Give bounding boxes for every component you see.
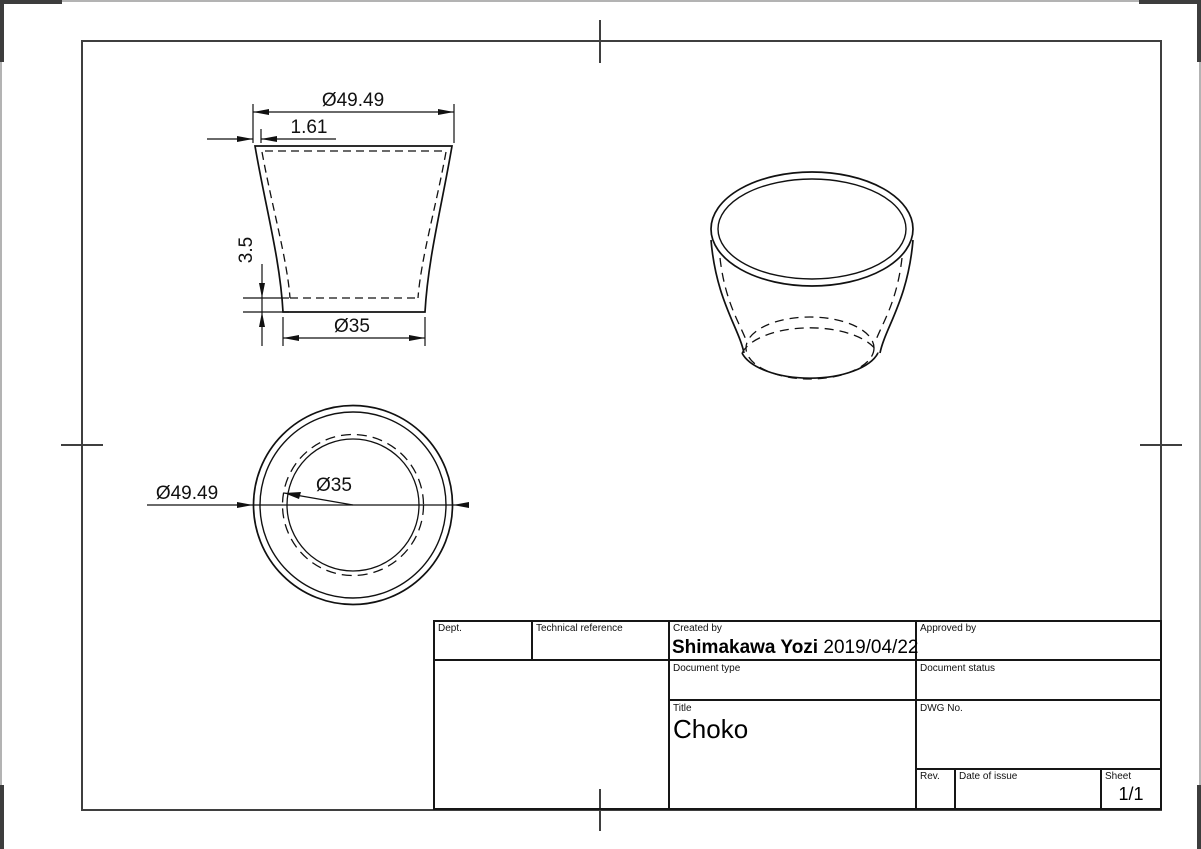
iso-rim-inner-ellipse <box>718 179 906 279</box>
title-label: Title <box>673 703 692 714</box>
front-view-hidden-lines <box>262 151 446 298</box>
dept-label: Dept. <box>438 623 462 634</box>
dim-front-bottom-diameter-text: Ø35 <box>334 316 370 337</box>
front-view: Ø49.49 1.61 3.5 Ø35 <box>207 90 454 346</box>
technical-reference-label: Technical reference <box>536 623 623 634</box>
title-value: Choko <box>673 714 748 745</box>
title-block-vline-rev <box>954 768 956 810</box>
created-date: 2019/04/22 <box>823 637 918 658</box>
drawing-sheet: { "title_block": { "dept_label": "Dept."… <box>0 0 1201 849</box>
dim-front-top-diameter-text: Ø49.49 <box>322 90 384 111</box>
iso-bottom-front-arc <box>742 353 878 378</box>
iso-rim-outer-ellipse <box>711 172 913 286</box>
sheet-frame <box>61 20 1182 831</box>
iso-right-silhouette <box>880 240 913 353</box>
title-block-vline-dept <box>531 620 533 659</box>
sheet-value: 1/1 <box>1102 784 1160 805</box>
dim-front-rim-thickness-text: 1.61 <box>291 117 328 138</box>
approved-by-label: Approved by <box>920 623 976 634</box>
iso-bottom-rear-arc <box>742 328 878 353</box>
created-by-name: Shimakawa Yozi <box>672 637 818 658</box>
title-block-hline-row3 <box>915 768 1162 770</box>
title-block-border-left <box>433 620 435 810</box>
title-block-vline-createdby <box>668 620 670 810</box>
title-block-border-right <box>1160 620 1162 810</box>
front-view-outline <box>255 146 452 312</box>
document-type-label: Document type <box>673 663 740 674</box>
document-status-label: Document status <box>920 663 995 674</box>
title-block-hline-row2 <box>668 699 1162 701</box>
rev-label: Rev. <box>920 771 940 782</box>
iso-left-silhouette <box>711 240 744 353</box>
isometric-view <box>711 172 913 379</box>
title-block-hline-row1 <box>433 659 1162 661</box>
dim-front-base-height-text: 3.5 <box>236 237 257 263</box>
dim-top-bottom-diameter-text: Ø35 <box>316 475 352 496</box>
drawing-canvas: Ø49.49 1.61 3.5 Ø35 <box>0 0 1201 849</box>
created-by-label: Created by <box>673 623 722 634</box>
dwg-no-label: DWG No. <box>920 703 963 714</box>
title-block-border-top <box>433 620 1162 622</box>
created-by-value: Shimakawa Yozi 2019/04/22 <box>672 637 918 659</box>
dim-top-outer-diameter-text: Ø49.49 <box>156 483 218 504</box>
sheet-label: Sheet <box>1105 771 1131 782</box>
top-view: Ø49.49 Ø35 <box>147 406 469 605</box>
title-block-border-bottom <box>433 808 1162 810</box>
frame-border <box>82 41 1161 810</box>
iso-inner-bottom-ellipse <box>746 317 874 379</box>
date-of-issue-label: Date of issue <box>959 771 1017 782</box>
